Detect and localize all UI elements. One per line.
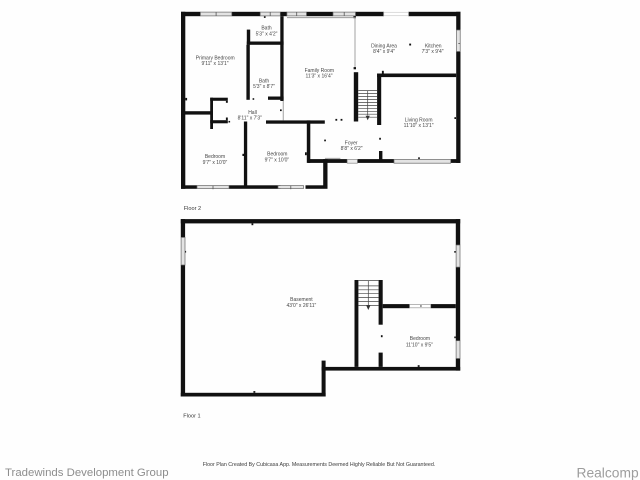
svg-text:8'4" x 9'4": 8'4" x 9'4" (373, 49, 395, 55)
svg-text:43'0" x 26'11": 43'0" x 26'11" (286, 303, 316, 309)
svg-text:Floor 1: Floor 1 (183, 413, 200, 419)
svg-text:Floor 2: Floor 2 (184, 206, 201, 212)
svg-text:8'8" x 6'2": 8'8" x 6'2" (341, 146, 363, 152)
svg-text:11'10" x 9'5": 11'10" x 9'5" (406, 343, 433, 349)
svg-text:Floor Plan Created By Cubicasa: Floor Plan Created By Cubicasa App. Meas… (203, 462, 436, 468)
svg-text:11'3" x 16'4": 11'3" x 16'4" (305, 74, 332, 80)
svg-text:8'11" x 7'3": 8'11" x 7'3" (238, 116, 262, 122)
svg-text:9'11" x 13'1": 9'11" x 13'1" (201, 61, 228, 67)
svg-text:7'3" x 9'4": 7'3" x 9'4" (422, 49, 444, 55)
svg-text:Tradewinds Development Group: Tradewinds Development Group (5, 467, 169, 479)
svg-text:5'3" x 4'2": 5'3" x 4'2" (256, 31, 278, 37)
svg-text:9'7" x 10'0": 9'7" x 10'0" (265, 157, 290, 163)
svg-text:9'7" x 10'0": 9'7" x 10'0" (203, 160, 228, 166)
svg-text:11'10" x 13'1": 11'10" x 13'1" (404, 123, 434, 129)
svg-text:5'3" x 8'7": 5'3" x 8'7" (253, 84, 275, 90)
svg-text:Bedroom: Bedroom (410, 336, 430, 342)
svg-text:Realcomp: Realcomp (577, 466, 639, 480)
